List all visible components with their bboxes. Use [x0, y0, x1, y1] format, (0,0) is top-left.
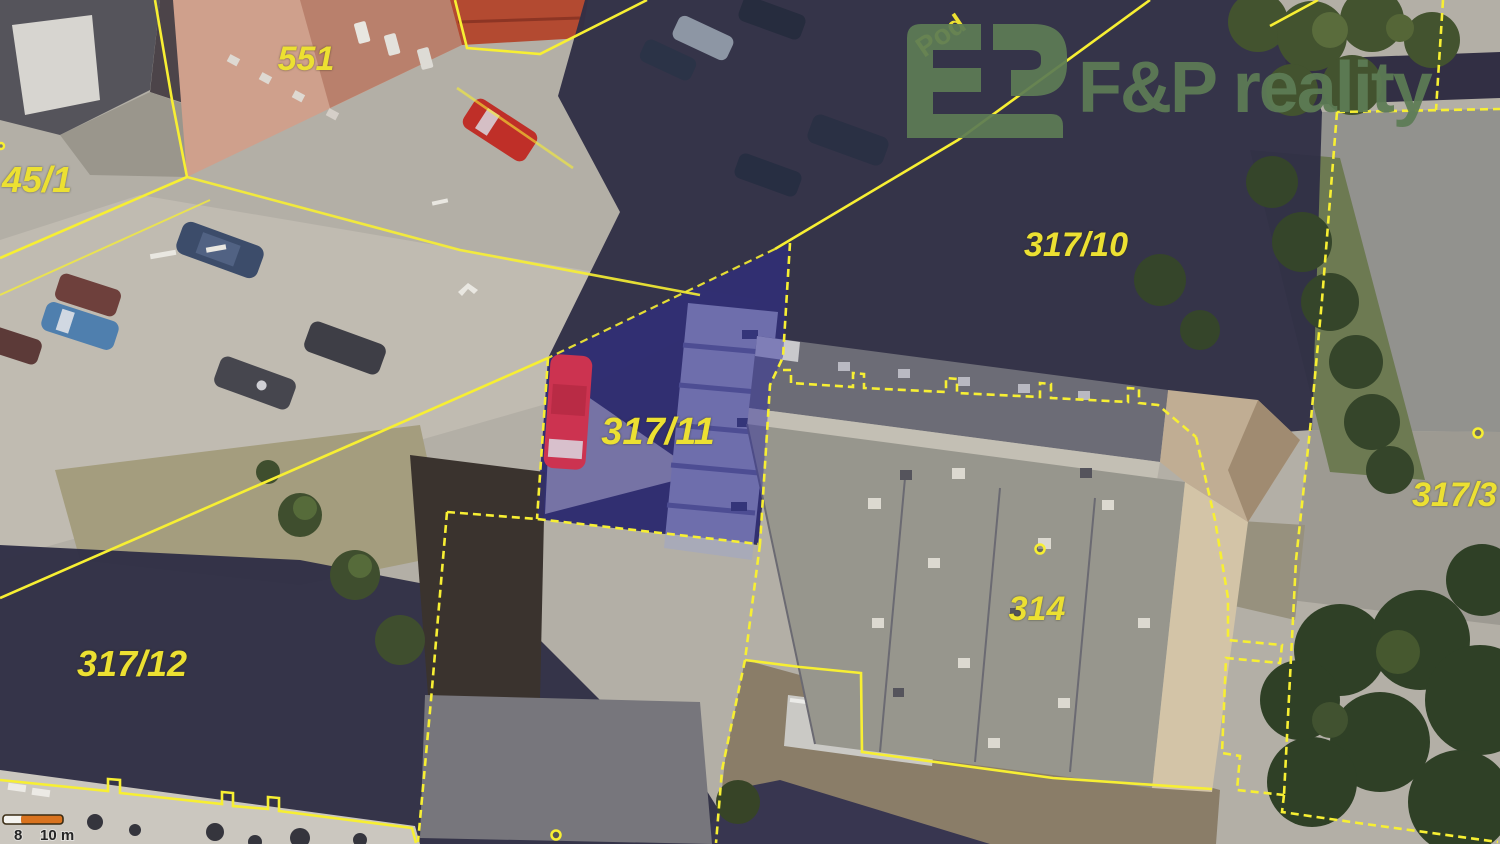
parcel-label-314: 314	[1009, 590, 1066, 628]
parcel-label-317-3: 317/3	[1412, 476, 1497, 514]
cadastral-aerial-map: 551 45/1 317/10 317/11 317/12 314 317/3 …	[0, 0, 1500, 844]
roof-bottom-center	[420, 695, 712, 844]
parcel-label-45-1: 45/1	[1, 159, 72, 200]
parcel-label-317-12: 317/12	[77, 643, 187, 684]
map-canvas: 551 45/1 317/10 317/11 317/12 314 317/3 …	[0, 0, 1500, 844]
scale-tick-label: 8	[14, 827, 22, 844]
dark-roof-strip	[410, 455, 545, 700]
scale-unit-label: 10 m	[40, 827, 74, 844]
building-314	[747, 336, 1300, 792]
car-red-parcel	[543, 354, 593, 471]
parcel-label-317-10: 317/10	[1024, 226, 1128, 264]
parcel-label-551: 551	[278, 40, 335, 78]
logo-text: F&P reality	[1078, 48, 1433, 128]
parcel-label-317-11: 317/11	[601, 411, 714, 453]
bush-bottom	[716, 780, 760, 824]
